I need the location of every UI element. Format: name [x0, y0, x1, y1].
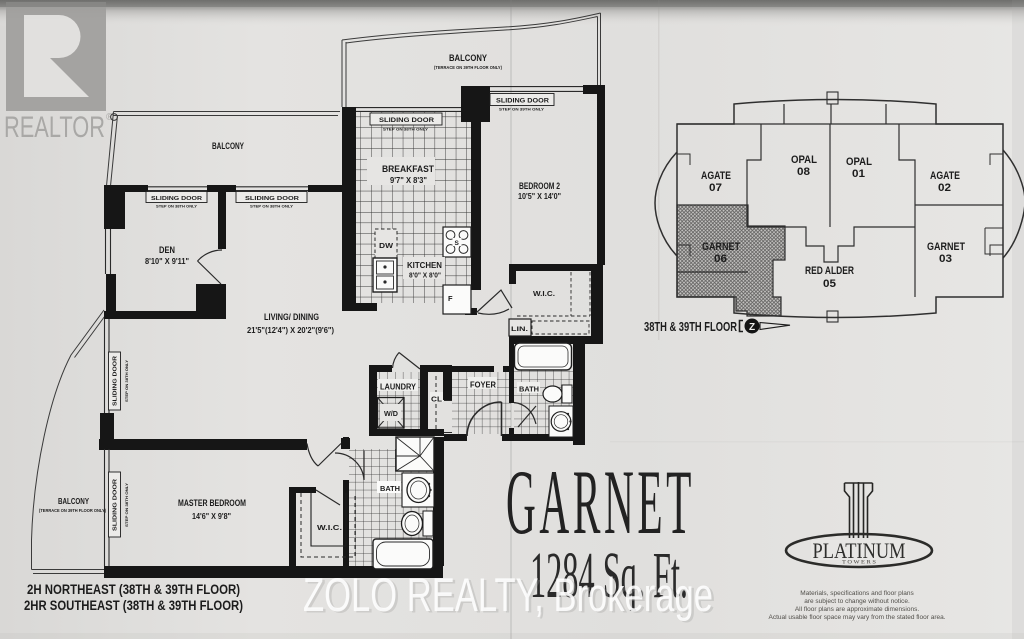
svg-text:STEP ON 38TH ONLY: STEP ON 38TH ONLY — [125, 482, 129, 527]
svg-text:9'7" X 8'3": 9'7" X 8'3" — [390, 176, 427, 185]
svg-text:are subject to change without: are subject to change without notice. — [804, 598, 910, 605]
svg-text:03: 03 — [939, 253, 952, 265]
svg-text:SLIDING DOOR: SLIDING DOOR — [151, 196, 202, 202]
svg-text:02: 02 — [938, 182, 951, 194]
svg-text:LIVING/ DINING: LIVING/ DINING — [264, 312, 319, 323]
svg-text:MASTER BEDROOM: MASTER BEDROOM — [178, 498, 246, 508]
svg-text:FOYER: FOYER — [470, 380, 496, 390]
svg-text:BEDROOM 2: BEDROOM 2 — [519, 181, 560, 191]
svg-text:(TERRACE ON 39TH FLOOR ONLY): (TERRACE ON 39TH FLOOR ONLY) — [39, 508, 106, 513]
svg-text:S: S — [455, 240, 460, 247]
svg-text:STEP ON 38TH ONLY: STEP ON 38TH ONLY — [383, 127, 428, 132]
svg-text:All floor plans are approximat: All floor plans are approximate dimensio… — [795, 606, 919, 613]
svg-text:KITCHEN: KITCHEN — [407, 260, 442, 270]
svg-text:STEP ON 38TH ONLY: STEP ON 38TH ONLY — [250, 205, 294, 209]
svg-text:BATH: BATH — [519, 385, 539, 394]
svg-text:GARNET: GARNET — [506, 451, 695, 553]
svg-text:LAUNDRY: LAUNDRY — [380, 383, 417, 392]
svg-text:BALCONY: BALCONY — [212, 141, 244, 152]
svg-text:GARNET: GARNET — [702, 241, 740, 253]
svg-text:BALCONY: BALCONY — [449, 53, 488, 64]
svg-text:RED ALDER: RED ALDER — [805, 265, 854, 277]
svg-text:38TH & 39TH FLOOR: 38TH & 39TH FLOOR — [644, 320, 737, 334]
svg-text:05: 05 — [823, 278, 836, 290]
svg-text:STEP ON 38TH ONLY: STEP ON 38TH ONLY — [125, 359, 129, 402]
svg-text:CL: CL — [431, 397, 443, 404]
svg-text:STEP ON 38TH ONLY: STEP ON 38TH ONLY — [156, 205, 197, 209]
svg-text:AGATE: AGATE — [930, 170, 960, 182]
svg-text:SLIDING DOOR: SLIDING DOOR — [113, 356, 119, 406]
svg-text:BREAKFAST: BREAKFAST — [382, 164, 434, 174]
svg-text:8'0" X 8'0": 8'0" X 8'0" — [409, 271, 441, 280]
svg-text:DEN: DEN — [159, 245, 175, 255]
svg-text:STEP ON 39TH ONLY: STEP ON 39TH ONLY — [499, 107, 544, 112]
svg-text:(TERRACE ON 39TH FLOOR ONLY): (TERRACE ON 39TH FLOOR ONLY) — [434, 65, 502, 70]
svg-text:OPAL: OPAL — [791, 154, 817, 166]
svg-text:Z: Z — [749, 322, 755, 333]
svg-text:GARNET: GARNET — [927, 241, 965, 253]
svg-text:Actual usable floor space may: Actual usable floor space may vary from … — [768, 614, 945, 621]
svg-text:SLIDING DOOR: SLIDING DOOR — [113, 479, 119, 531]
svg-text:W.I.C.: W.I.C. — [533, 289, 555, 298]
svg-text:F: F — [448, 294, 453, 303]
svg-text:T O W E R S: T O W E R S — [842, 560, 876, 566]
svg-text:ZOLO REALTY, Brokerage: ZOLO REALTY, Brokerage — [303, 568, 713, 621]
svg-text:10'5" X 14'0": 10'5" X 14'0" — [518, 192, 561, 201]
svg-text:07: 07 — [709, 182, 722, 194]
svg-text:REALTOR: REALTOR — [4, 111, 105, 144]
svg-text:BATH: BATH — [380, 484, 400, 493]
svg-text:01: 01 — [852, 168, 865, 180]
svg-text:SLIDING DOOR: SLIDING DOOR — [379, 118, 435, 124]
svg-text:2H NORTHEAST (38TH & 39TH FLOO: 2H NORTHEAST (38TH & 39TH FLOOR) — [27, 582, 240, 597]
svg-text:2HR SOUTHEAST (38TH & 39TH FLO: 2HR SOUTHEAST (38TH & 39TH FLOOR) — [24, 598, 243, 613]
svg-text:06: 06 — [714, 253, 727, 265]
svg-text:21'5"(12'4") X 20'2"(9'6"): 21'5"(12'4") X 20'2"(9'6") — [247, 325, 334, 335]
svg-text:AGATE: AGATE — [701, 170, 731, 182]
svg-text:W.I.C.: W.I.C. — [317, 523, 342, 532]
svg-text:LIN.: LIN. — [511, 326, 528, 333]
svg-text:OPAL: OPAL — [846, 156, 872, 168]
svg-text:8'10" X 9'11": 8'10" X 9'11" — [145, 257, 189, 266]
svg-text:08: 08 — [797, 166, 810, 178]
svg-text:Materials, specifications and: Materials, specifications and floor plan… — [800, 590, 914, 597]
svg-text:SLIDING DOOR: SLIDING DOOR — [245, 196, 299, 202]
svg-text:DW: DW — [379, 243, 393, 250]
svg-text:14'6" X 9'8": 14'6" X 9'8" — [192, 512, 231, 521]
svg-text:SLIDING DOOR: SLIDING DOOR — [496, 99, 550, 105]
svg-text:W/D: W/D — [384, 411, 398, 418]
svg-text:BALCONY: BALCONY — [58, 496, 89, 506]
